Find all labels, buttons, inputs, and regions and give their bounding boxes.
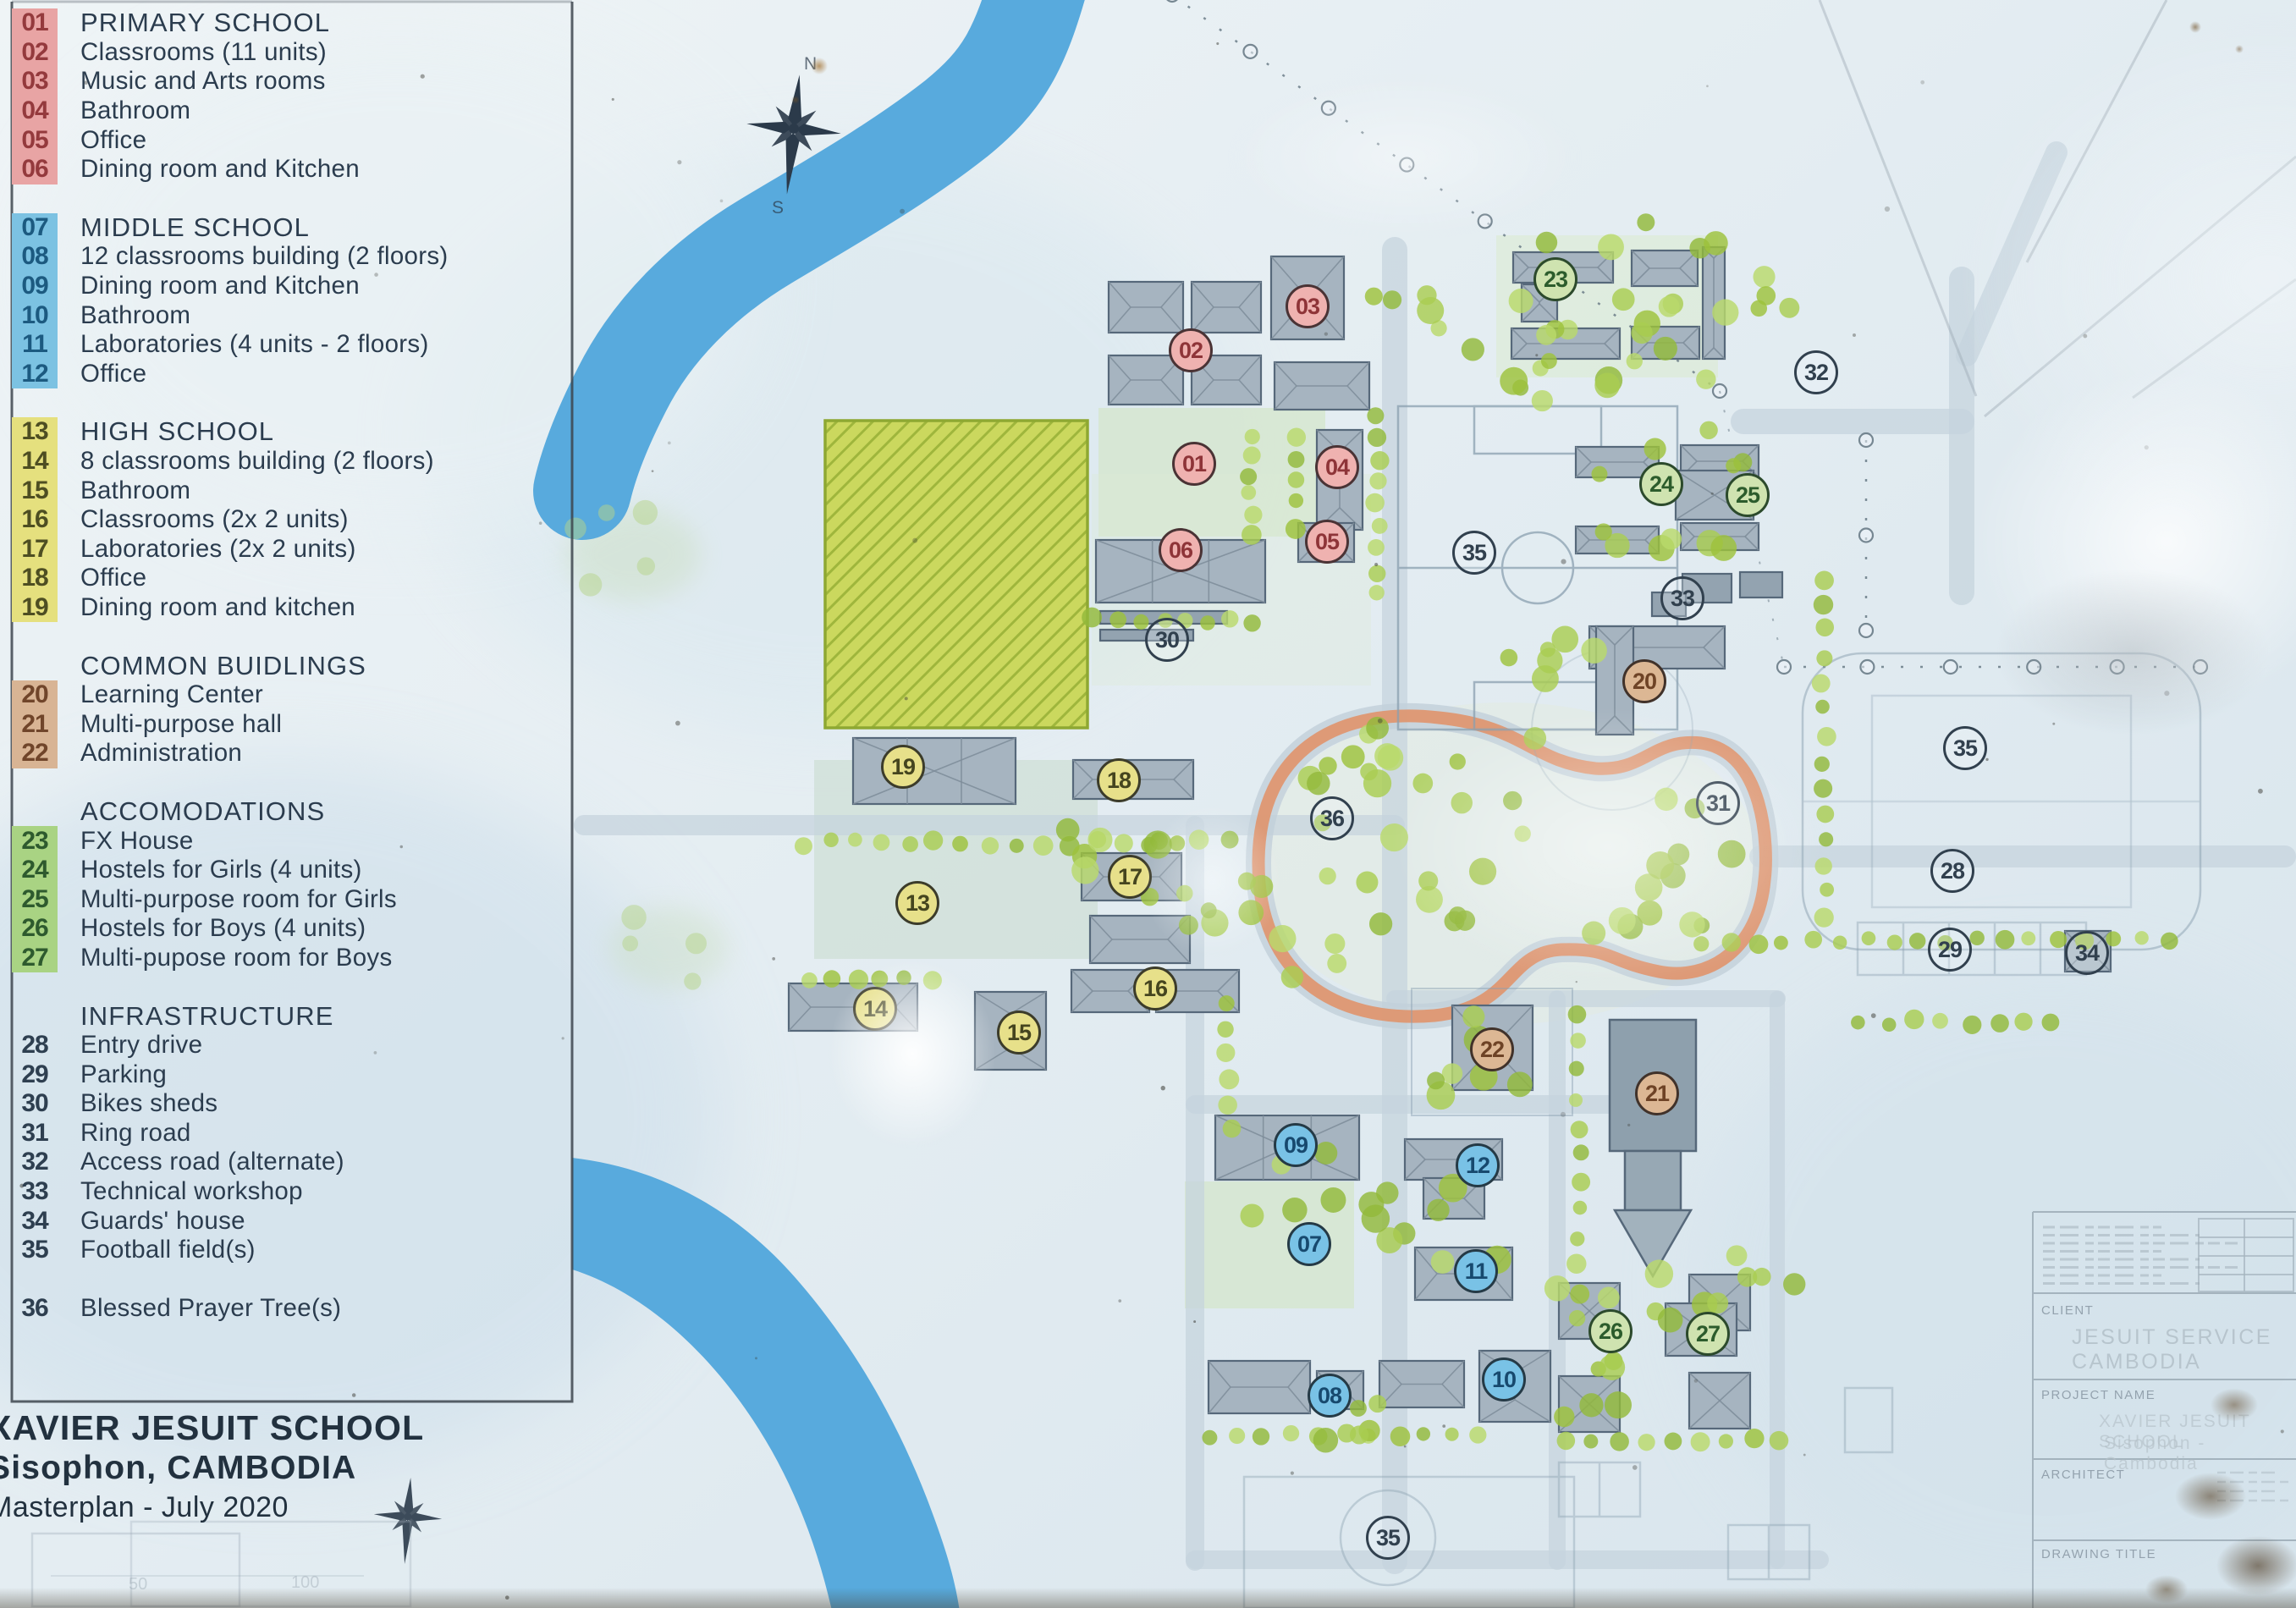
map-marker-06: 06 (1159, 528, 1203, 572)
legend-row-19: 19Dining room and kitchen (12, 593, 570, 623)
legend-label: Office (80, 564, 146, 592)
legend-label: Ring road (80, 1119, 191, 1148)
legend-row-28: 28Entry drive (12, 1031, 570, 1060)
hatched-field (825, 421, 1087, 728)
legend-section-6: 36Blessed Prayer Tree(s) (12, 1294, 570, 1324)
legend-label: Office (80, 126, 146, 155)
legend-label: Parking (80, 1060, 167, 1089)
legend-number-spacer (12, 1001, 58, 1031)
legend-label: 12 classrooms building (2 floors) (80, 242, 449, 271)
legend-label: Multi-purpose hall (80, 710, 282, 739)
map-marker-01: 01 (1172, 442, 1216, 486)
legend-section-2: 13HIGH SCHOOL148 classrooms building (2 … (12, 417, 570, 622)
scale-mark-100: 100 (291, 1573, 319, 1592)
map-marker-36: 36 (1310, 796, 1354, 840)
legend-number-04: 04 (12, 96, 58, 126)
legend-row-25: 25Multi-purpose room for Girls (12, 884, 570, 914)
legend-label: 8 classrooms building (2 floors) (80, 447, 434, 476)
titleblock-project-label: PROJECT NAME (2041, 1388, 2156, 1402)
legend-number-29: 29 (12, 1060, 58, 1089)
map-marker-10: 10 (1482, 1357, 1526, 1401)
legend-label: Classrooms (2x 2 units) (80, 505, 349, 534)
map-marker-03: 03 (1286, 284, 1330, 328)
legend-label: Blessed Prayer Tree(s) (80, 1294, 341, 1323)
legend-row-21: 21Multi-purpose hall (12, 709, 570, 739)
map-marker-19: 19 (881, 745, 925, 789)
legend-number-24: 24 (12, 856, 58, 885)
legend-row-33: 33Technical workshop (12, 1177, 570, 1207)
map-marker-27: 27 (1686, 1312, 1730, 1356)
legend-section-1: 07MIDDLE SCHOOL0812 classrooms building … (12, 213, 570, 389)
legend-number-26: 26 (12, 914, 58, 944)
legend-label: Learning Center (80, 680, 263, 709)
legend-number-35: 35 (12, 1236, 58, 1265)
legend-row-27: 27Multi-pupose room for Boys (12, 944, 570, 973)
legend-number-31: 31 (12, 1119, 58, 1148)
legend-number-19: 19 (12, 593, 58, 623)
map-marker-35: 35 (1452, 531, 1496, 575)
legend-row-02: 02Classrooms (11 units) (12, 38, 570, 68)
pencil-sketches (32, 1522, 410, 1606)
titleblock-drawing-label: DRAWING TITLE (2041, 1547, 2156, 1561)
legend-row-14: 148 classrooms building (2 floors) (12, 447, 570, 476)
legend-number-10: 10 (12, 300, 58, 330)
titleblock-architect-label: ARCHITECT (2041, 1468, 2125, 1482)
map-marker-33: 33 (1660, 576, 1704, 620)
legend-number-03: 03 (12, 67, 58, 96)
legend-number-17: 17 (12, 535, 58, 564)
legend-label: Classrooms (11 units) (80, 38, 327, 67)
map-marker-08: 08 (1308, 1374, 1352, 1418)
map-marker-05: 05 (1305, 520, 1349, 564)
titleblock-client-value: JESUIT SERVICE CAMBODIA (2072, 1325, 2296, 1374)
legend-row-03: 03Music and Arts rooms (12, 67, 570, 96)
legend-number-12: 12 (12, 360, 58, 389)
legend-number-27: 27 (12, 944, 58, 973)
map-marker-04: 04 (1315, 445, 1359, 489)
map-marker-11: 11 (1454, 1249, 1498, 1293)
map-title-line3: Masterplan - July 2020 (0, 1491, 424, 1524)
legend-row-07: 07MIDDLE SCHOOL (12, 213, 570, 243)
legend-label: INFRASTRUCTURE (80, 1001, 334, 1032)
legend-row-11: 11Laboratories (4 units - 2 floors) (12, 330, 570, 360)
scale-mark-50: 50 (129, 1575, 147, 1594)
map-marker-07: 07 (1287, 1222, 1331, 1266)
map-marker-16: 16 (1133, 966, 1177, 1011)
map-marker-25: 25 (1726, 473, 1770, 517)
legend-label: Access road (alternate) (80, 1148, 344, 1176)
map-marker-18: 18 (1097, 758, 1141, 802)
map-marker-28: 28 (1930, 849, 1974, 893)
legend-row-12: 12Office (12, 360, 570, 389)
legend-number-spacer (12, 651, 58, 680)
legend-section-4: ACCOMODATIONS23FX House24Hostels for Gir… (12, 797, 570, 973)
legend-label: Bathroom (80, 301, 190, 330)
legend-number-spacer (12, 797, 58, 827)
legend-number-28: 28 (12, 1031, 58, 1060)
map-marker-35: 35 (1943, 726, 1987, 770)
map-title-line1: XAVIER JESUIT SCHOOL (0, 1408, 424, 1448)
legend-label: Laboratories (2x 2 units) (80, 535, 356, 564)
legend-label: COMMON BUIDLINGS (80, 651, 366, 681)
legend-row-22: 22Administration (12, 739, 570, 768)
legend-row-15: 15Bathroom (12, 476, 570, 505)
map-title-line2: Sisophon, CAMBODIA (0, 1450, 424, 1487)
legend-label: Bathroom (80, 96, 190, 125)
legend-number-22: 22 (12, 739, 58, 768)
legend-section-5: INFRASTRUCTURE28Entry drive29Parking30Bi… (12, 1001, 570, 1264)
map-marker-29: 29 (1928, 928, 1972, 972)
legend-label: Dining room and kitchen (80, 593, 355, 622)
legend-row-08: 0812 classrooms building (2 floors) (12, 242, 570, 272)
map-marker-02: 02 (1169, 328, 1213, 372)
legend-number-34: 34 (12, 1206, 58, 1236)
map-marker-09: 09 (1274, 1123, 1318, 1167)
legend-row-16: 16Classrooms (2x 2 units) (12, 505, 570, 535)
map-marker-20: 20 (1622, 659, 1666, 703)
map-marker-30: 30 (1145, 618, 1189, 662)
legend-label: Music and Arts rooms (80, 67, 326, 96)
legend-row-06: 06Dining room and Kitchen (12, 155, 570, 184)
legend-number-23: 23 (12, 826, 58, 856)
map-marker-31: 31 (1696, 781, 1740, 825)
legend-row-01: 01PRIMARY SCHOOL (12, 8, 570, 38)
legend-row-header: ACCOMODATIONS (12, 797, 570, 827)
legend-number-15: 15 (12, 476, 58, 505)
legend-label: Administration (80, 739, 242, 768)
legend-number-20: 20 (12, 680, 58, 710)
legend-row-24: 24Hostels for Girls (4 units) (12, 856, 570, 885)
legend-number-30: 30 (12, 1089, 58, 1119)
legend-row-20: 20Learning Center (12, 680, 570, 710)
legend-label: PRIMARY SCHOOL (80, 8, 330, 38)
legend-row-05: 05Office (12, 125, 570, 155)
legend-label: FX House (80, 827, 194, 856)
legend-number-36: 36 (12, 1294, 58, 1324)
legend: 01PRIMARY SCHOOL02Classrooms (11 units)0… (12, 8, 570, 1323)
legend-number-21: 21 (12, 709, 58, 739)
legend-number-13: 13 (12, 417, 58, 447)
legend-row-30: 30Bikes sheds (12, 1089, 570, 1119)
legend-number-18: 18 (12, 564, 58, 593)
legend-number-02: 02 (12, 38, 58, 68)
legend-number-25: 25 (12, 884, 58, 914)
legend-row-32: 32Access road (alternate) (12, 1148, 570, 1177)
titleblock-client-label: CLIENT (2041, 1303, 2094, 1318)
legend-label: Entry drive (80, 1031, 202, 1060)
legend-section-3: COMMON BUIDLINGS20Learning Center21Multi… (12, 651, 570, 768)
legend-section-0: 01PRIMARY SCHOOL02Classrooms (11 units)0… (12, 8, 570, 184)
legend-number-05: 05 (12, 125, 58, 155)
map-title: XAVIER JESUIT SCHOOL Sisophon, CAMBODIA … (0, 1408, 424, 1524)
compass-north-label: N (804, 54, 817, 74)
legend-label: Dining room and Kitchen (80, 155, 360, 184)
titleblock-project-value-2: Sisophon - Cambodia (2104, 1434, 2296, 1474)
legend-row-29: 29Parking (12, 1060, 570, 1089)
legend-number-09: 09 (12, 272, 58, 301)
masterplan-sign-photo: N S 50 100 (0, 0, 2296, 1608)
legend-number-33: 33 (12, 1177, 58, 1207)
legend-row-17: 17Laboratories (2x 2 units) (12, 535, 570, 564)
map-marker-34: 34 (2065, 931, 2109, 975)
map-marker-17: 17 (1108, 855, 1152, 899)
map-marker-23: 23 (1533, 257, 1577, 301)
legend-label: Hostels for Girls (4 units) (80, 856, 362, 884)
map-marker-14: 14 (853, 987, 897, 1031)
legend-row-31: 31Ring road (12, 1119, 570, 1148)
map-marker-12: 12 (1456, 1143, 1500, 1187)
legend-label: MIDDLE SCHOOL (80, 212, 310, 243)
map-marker-15: 15 (997, 1011, 1041, 1055)
legend-label: Multi-pupose room for Boys (80, 944, 393, 972)
legend-row-10: 10Bathroom (12, 300, 570, 330)
legend-label: Bathroom (80, 476, 190, 505)
legend-number-32: 32 (12, 1148, 58, 1177)
legend-label: Guards' house (80, 1207, 245, 1236)
map-marker-13: 13 (895, 881, 939, 925)
legend-row-18: 18Office (12, 564, 570, 593)
legend-label: ACCOMODATIONS (80, 796, 325, 827)
legend-number-08: 08 (12, 242, 58, 272)
legend-label: HIGH SCHOOL (80, 416, 274, 447)
legend-label: Hostels for Boys (4 units) (80, 914, 366, 943)
legend-label: Office (80, 360, 146, 388)
multipurpose-hall-building (1610, 1020, 1696, 1276)
legend-row-header: INFRASTRUCTURE (12, 1001, 570, 1031)
legend-label: Laboratories (4 units - 2 floors) (80, 330, 429, 359)
legend-row-36: 36Blessed Prayer Tree(s) (12, 1294, 570, 1324)
legend-number-14: 14 (12, 447, 58, 476)
legend-number-11: 11 (12, 330, 58, 360)
legend-row-13: 13HIGH SCHOOL (12, 417, 570, 447)
map-marker-26: 26 (1588, 1309, 1633, 1353)
legend-row-34: 34Guards' house (12, 1206, 570, 1236)
legend-number-16: 16 (12, 505, 58, 535)
legend-label: Football field(s) (80, 1236, 256, 1264)
map-marker-32: 32 (1794, 350, 1838, 394)
legend-label: Bikes sheds (80, 1089, 217, 1118)
legend-label: Technical workshop (80, 1177, 303, 1206)
compass-south-label: S (772, 198, 784, 218)
legend-row-header: COMMON BUIDLINGS (12, 651, 570, 680)
legend-number-06: 06 (12, 155, 58, 184)
legend-label: Multi-purpose room for Girls (80, 885, 397, 914)
legend-row-35: 35Football field(s) (12, 1236, 570, 1265)
legend-label: Dining room and Kitchen (80, 272, 360, 300)
map-marker-21: 21 (1635, 1071, 1679, 1115)
legend-number-07: 07 (12, 213, 58, 243)
legend-row-09: 09Dining room and Kitchen (12, 272, 570, 301)
map-marker-24: 24 (1639, 462, 1683, 506)
legend-row-23: 23FX House (12, 826, 570, 856)
legend-row-26: 26Hostels for Boys (4 units) (12, 914, 570, 944)
legend-number-01: 01 (12, 8, 58, 38)
map-marker-35: 35 (1366, 1516, 1410, 1560)
map-marker-22: 22 (1470, 1027, 1514, 1071)
legend-row-04: 04Bathroom (12, 96, 570, 126)
